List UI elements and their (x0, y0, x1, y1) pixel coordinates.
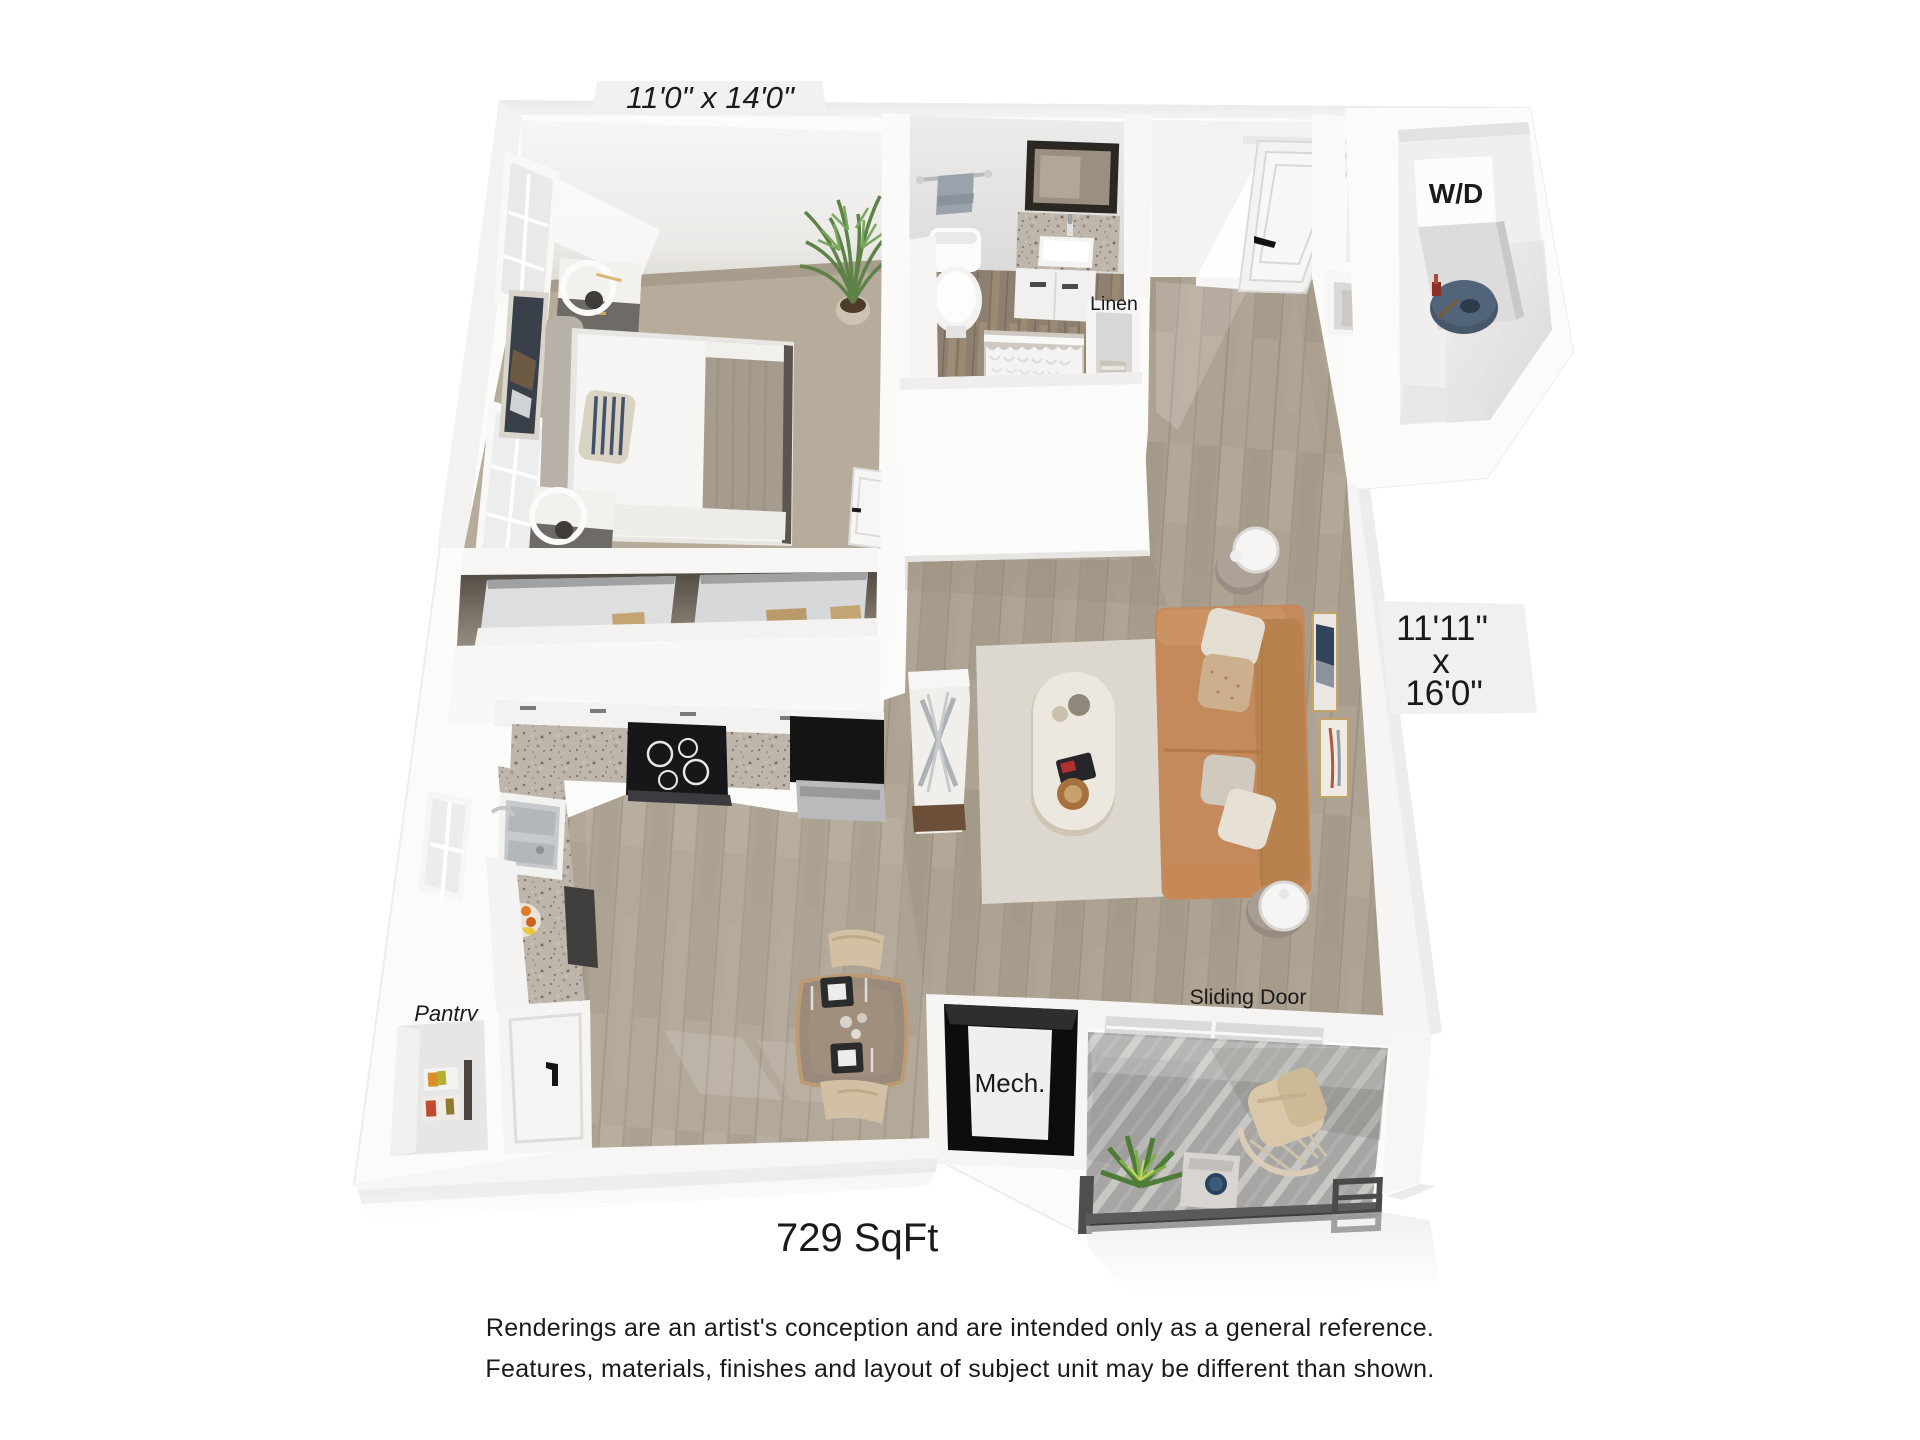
svg-text:Mech.: Mech. (975, 1068, 1046, 1098)
svg-text:16'0": 16'0" (1405, 674, 1483, 713)
svg-text:11'0" x 14'0": 11'0" x 14'0" (626, 80, 796, 115)
svg-text:W/D: W/D (1429, 178, 1483, 209)
svg-text:Sliding Door: Sliding Door (1189, 985, 1306, 1009)
svg-text:Renderings are an artist's con: Renderings are an artist's conception an… (486, 1314, 1434, 1342)
svg-text:Features, materials, finishes: Features, materials, finishes and layout… (485, 1355, 1434, 1383)
svg-text:729 SqFt: 729 SqFt (776, 1216, 938, 1260)
